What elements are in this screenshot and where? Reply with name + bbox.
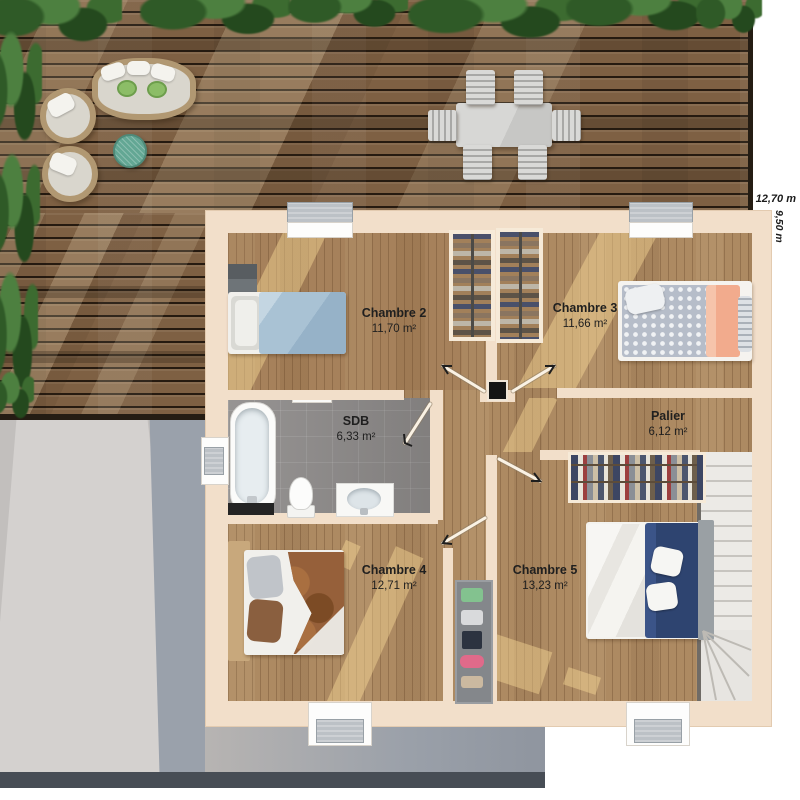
doors-and-stairs-overlay <box>0 0 800 800</box>
floor-plan-image: Chambre 2 11,70 m² Chambre 3 11,66 m² SD… <box>0 0 800 800</box>
dimension-width: 12,70 m <box>740 193 796 205</box>
dimension-depth: 9,50 m <box>773 210 785 243</box>
winder-treads <box>703 631 751 700</box>
door-swings <box>404 366 554 544</box>
door-arrowheads <box>404 366 554 544</box>
